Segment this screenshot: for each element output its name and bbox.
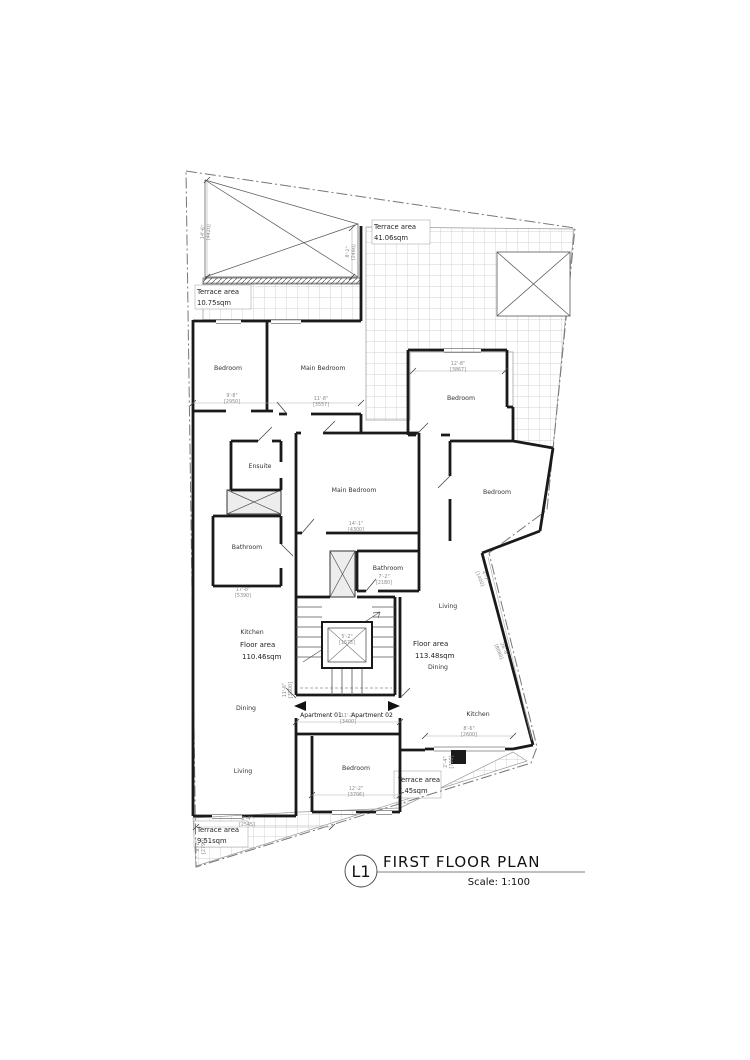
drawing-tag: L1 (351, 862, 370, 881)
dimension-label: 11'-2"[3400] (340, 713, 356, 725)
dimension-label: 8'-2"[2490] (345, 244, 358, 261)
floor-area-label: Floor area110.46sqm (240, 641, 282, 661)
room-label: Bedroom (483, 489, 511, 496)
dimension-label: 14'-1"[4300] (348, 521, 364, 533)
floor-area-label: Floor area113.48sqm (413, 640, 455, 660)
void-cross-top-left (205, 180, 358, 277)
dimension-label: 12'-8"[3867] (450, 361, 466, 373)
floor-plan-drawing: BedroomMain BedroomEnsuiteMain BedroomBe… (0, 0, 750, 1060)
dimension-label: 12'-2"[3706] (348, 786, 364, 798)
dimension-label: 9'-8"[2950] (224, 393, 240, 405)
void-cross-top-right (497, 252, 570, 316)
dimension-label: 17'-8"[5390] (235, 587, 251, 599)
room-label: Bathroom (373, 565, 403, 572)
apartment-label: Apartment 02 (351, 712, 393, 719)
room-label: Living (439, 603, 457, 610)
room-label: Kitchen (240, 629, 263, 636)
room-label: Bathroom (232, 544, 262, 551)
dimension-label: 11'-8"[3557] (313, 396, 329, 408)
dimension-label: 14'-6"[4420] (200, 224, 213, 241)
room-label: Bedroom (342, 765, 370, 772)
room-label: Dining (428, 664, 448, 671)
apartment-01-arrow (294, 701, 306, 711)
parapet-hatch-band (203, 278, 361, 284)
title-block: L1 FIRST FLOOR PLAN Scale: 1:100 (345, 853, 585, 888)
room-label: Dining (236, 705, 256, 712)
drawing-scale: Scale: 1:100 (468, 877, 530, 888)
room-label: Kitchen (466, 711, 489, 718)
dimension-label: 2'-4"[700] (443, 755, 455, 768)
dimension-label: 7'-2"[2180] (376, 574, 392, 586)
drawing-title: FIRST FLOOR PLAN (383, 853, 540, 871)
room-label: Bedroom (447, 395, 475, 402)
dimension-label: 8'-6"[2600] (461, 726, 477, 738)
apartment-02-arrow (388, 701, 400, 711)
apartment-label: Apartment 01 (300, 712, 342, 719)
room-label: Living (234, 768, 252, 775)
room-label: Main Bedroom (332, 487, 377, 494)
room-label: Bedroom (214, 365, 242, 372)
room-label: Main Bedroom (301, 365, 346, 372)
floor-plan-page: BedroomMain BedroomEnsuiteMain BedroomBe… (0, 0, 750, 1060)
room-label: Ensuite (249, 463, 272, 470)
